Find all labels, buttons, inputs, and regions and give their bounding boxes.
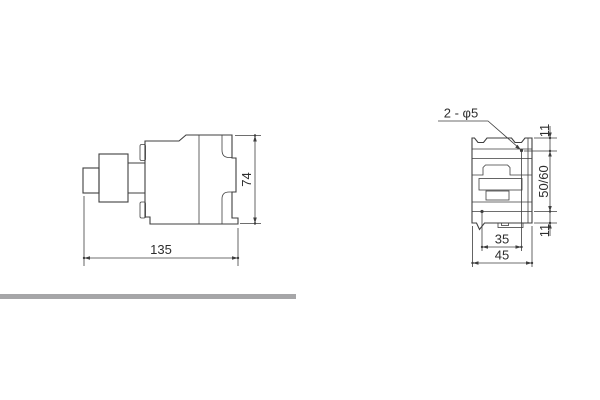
terminal-top-contour xyxy=(222,135,232,158)
hole-callout: 2 - φ5 xyxy=(438,106,521,151)
hole-bottom-marker xyxy=(480,210,483,213)
bottom-divider-bar xyxy=(0,294,296,299)
dim-label-top-offset: 11 xyxy=(537,124,552,138)
dimension-74: 74 xyxy=(235,134,261,224)
hole-callout-label: 2 - φ5 xyxy=(444,106,478,121)
dimension-drawing: 135 74 xyxy=(0,0,600,400)
cover-step-contour xyxy=(472,165,532,175)
dim-label-side-height: 74 xyxy=(239,172,254,186)
technical-drawing-canvas: 135 74 xyxy=(0,0,600,400)
front-body-outline xyxy=(472,138,532,230)
coil-block xyxy=(99,154,128,202)
dim-label-side-width: 135 xyxy=(150,242,172,257)
marking-window xyxy=(486,191,509,200)
foot-tab xyxy=(502,223,509,226)
side-view: 135 74 xyxy=(83,134,261,266)
dimension-135: 135 xyxy=(83,196,239,266)
dimension-35: 35 xyxy=(481,232,523,249)
dim-label-rail-spacing: 50/60 xyxy=(536,165,551,198)
hole-callout-leader xyxy=(438,121,519,148)
rib-lines xyxy=(472,149,532,212)
label-plate xyxy=(479,179,522,191)
plunger-block xyxy=(83,168,99,193)
dim-label-bottom-offset: 11 xyxy=(537,224,552,238)
dim-label-front-width: 45 xyxy=(495,248,509,263)
side-body-outline xyxy=(145,135,238,224)
neck-lines xyxy=(128,163,145,193)
terminal-bottom-contour xyxy=(222,192,232,224)
front-view: 2 - φ5 11 50/60 11 xyxy=(438,106,557,268)
dimension-stack-right: 11 50/60 11 xyxy=(524,124,557,238)
dim-label-hole-spacing: 35 xyxy=(495,232,509,247)
